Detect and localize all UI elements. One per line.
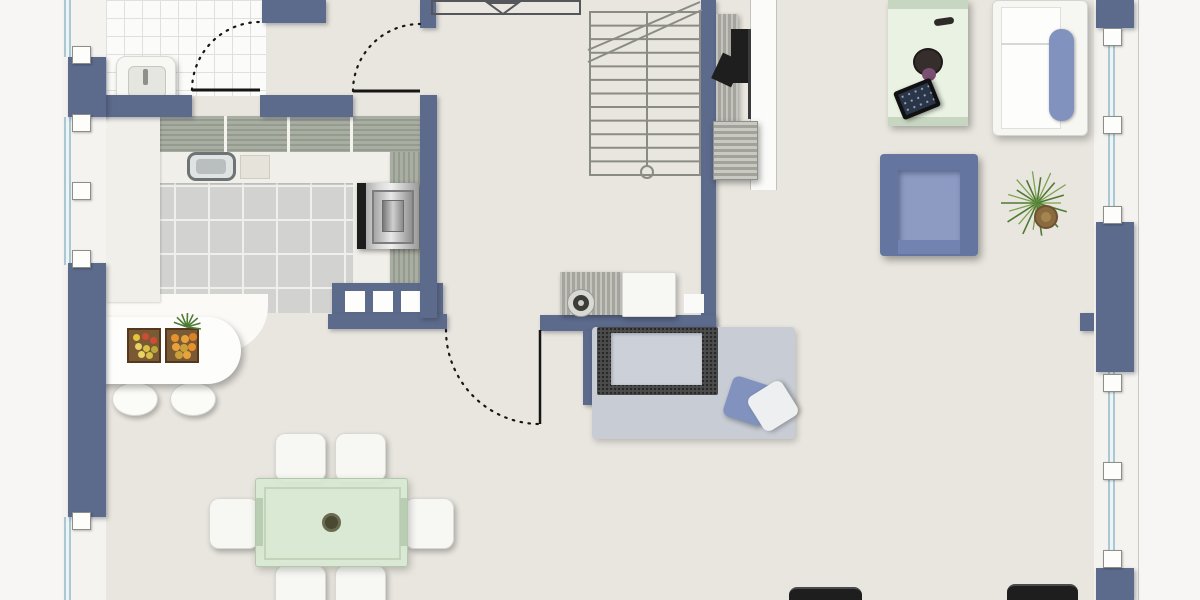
wall-segment — [420, 0, 436, 28]
bar-stool — [170, 382, 216, 416]
half-wall-post — [345, 291, 365, 312]
tv-cabinet — [713, 121, 758, 180]
window-mullion — [72, 46, 91, 64]
dining-chair — [275, 433, 326, 482]
exterior-wall-left — [68, 57, 106, 117]
half-wall-post — [401, 291, 421, 312]
counter-divider — [287, 116, 290, 153]
tv-screen-edge — [748, 29, 751, 119]
dining-chair — [335, 433, 386, 482]
dark-bench — [789, 587, 862, 600]
table-centerpiece — [322, 513, 341, 532]
counter-divider — [224, 116, 227, 153]
kitchen-upper-counter — [160, 116, 420, 153]
daybed-mattress — [611, 333, 702, 385]
table-side-rail — [400, 498, 407, 546]
dark-bench — [1007, 584, 1078, 600]
wall-segment — [100, 95, 192, 117]
window-mullion — [1103, 550, 1122, 568]
white-sofa — [992, 0, 1088, 136]
armchair — [880, 154, 978, 256]
plant-anchor — [1001, 167, 1073, 239]
sofa-blue-throw — [1049, 29, 1074, 121]
kitchen-worktop-left — [106, 117, 160, 302]
window-glass — [64, 517, 71, 600]
window-mullion — [72, 182, 91, 200]
fruit-icon — [133, 334, 140, 341]
sideboard-box — [622, 272, 676, 317]
dining-table — [255, 478, 408, 567]
dining-chair — [404, 498, 454, 549]
fruit-icon — [171, 334, 179, 342]
tablet-screen — [898, 83, 936, 115]
window-glass — [64, 117, 71, 265]
fruit-crate-oranges — [165, 328, 199, 363]
fruit-crate-bananas — [127, 328, 161, 363]
desk-edge — [888, 117, 968, 126]
kitchen-right-wall — [420, 95, 437, 318]
window-glass — [64, 0, 71, 57]
cutting-board — [240, 155, 270, 179]
kitchen-sink-basin — [196, 159, 226, 174]
exterior-wall-left — [68, 263, 106, 517]
oven — [357, 183, 419, 249]
desk-edge — [888, 0, 968, 9]
wall-segment — [260, 95, 353, 117]
half-wall-post — [373, 291, 393, 312]
wc-faucet-icon — [143, 69, 148, 85]
speaker-center — [578, 300, 584, 306]
wall-niche — [684, 294, 704, 313]
oven-cavity — [382, 200, 404, 232]
wall-segment-top — [262, 0, 326, 23]
glasses-icon — [934, 17, 955, 27]
table-side-rail — [256, 498, 263, 546]
kitchen-sink — [187, 152, 236, 181]
counter-divider — [350, 116, 353, 153]
speaker-icon — [567, 289, 595, 317]
exterior-wall-right — [1096, 222, 1134, 372]
window-mullion — [72, 114, 91, 132]
armchair-front-edge — [898, 240, 960, 254]
window-mullion — [1103, 28, 1122, 46]
desk — [888, 0, 968, 126]
exterior-wall-right — [1096, 0, 1134, 28]
window-mullion — [1103, 462, 1122, 480]
window-mullion — [1103, 116, 1122, 134]
tablet — [893, 78, 941, 121]
dining-chair — [335, 565, 386, 600]
window-mullion — [72, 512, 91, 530]
window-mullion — [1103, 206, 1122, 224]
outside-right — [1138, 0, 1200, 600]
floor-plan — [0, 0, 1200, 600]
window-mullion — [72, 250, 91, 268]
exterior-wall-right — [1096, 568, 1134, 600]
oven-door-edge — [357, 183, 366, 249]
dining-chair — [209, 498, 259, 549]
dining-chair — [275, 565, 326, 600]
outside-left — [0, 0, 63, 600]
bar-stool — [112, 382, 158, 416]
window-mullion — [1103, 374, 1122, 392]
